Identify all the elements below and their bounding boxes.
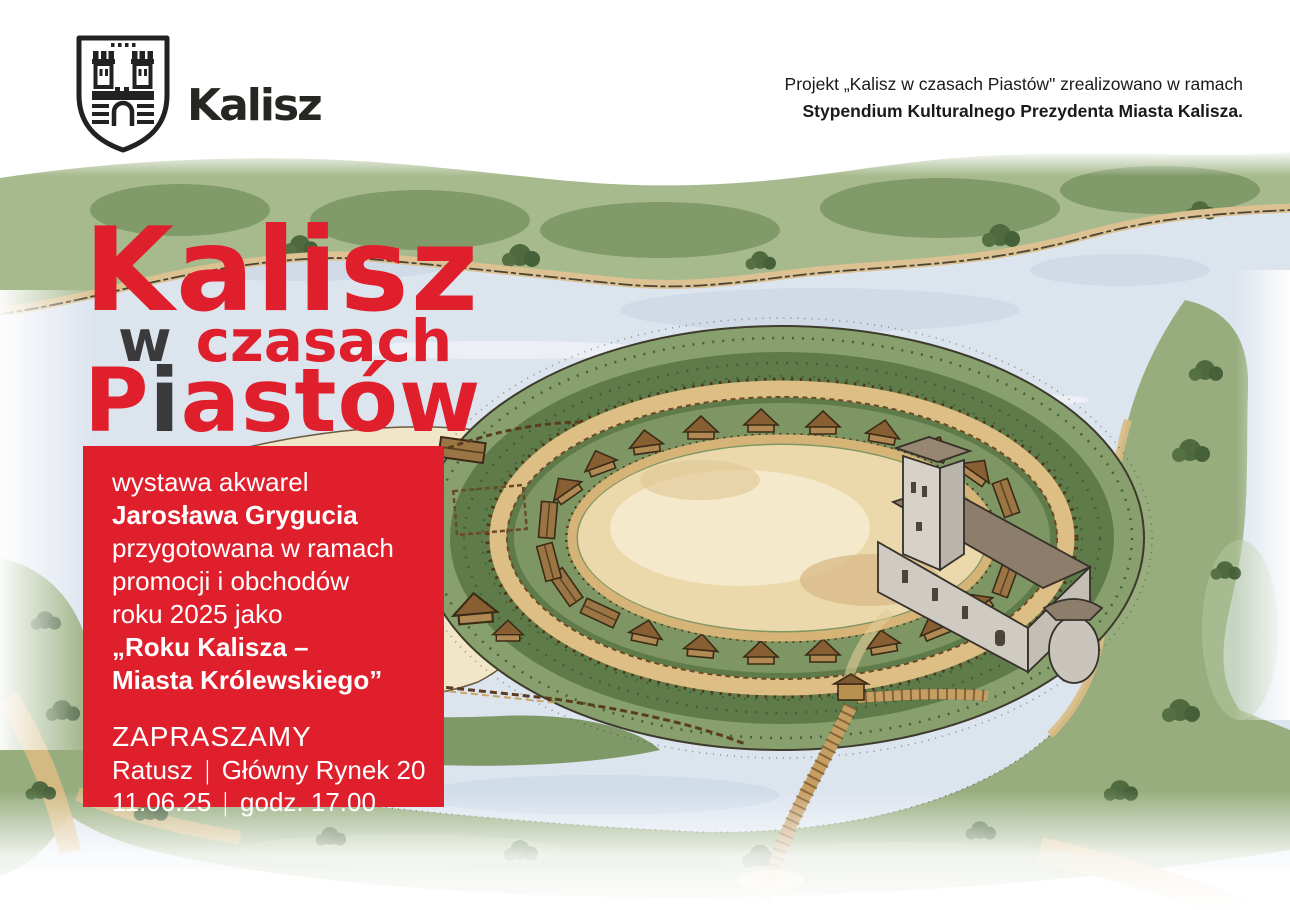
invite-heading: ZAPRASZAMY	[112, 720, 436, 754]
artist-name: Jarosława Grygucia	[112, 499, 436, 532]
venue-address: Główny Rynek 20	[222, 755, 426, 785]
year-title-line-1: „Roku Kalisza –	[112, 631, 436, 664]
kalisz-crest-icon	[73, 33, 173, 155]
details-line: roku 2025 jako	[112, 598, 436, 631]
poster-root: Kalisz Projekt „Kalisz w czasach Piastów…	[0, 0, 1290, 910]
year-title-line-2: Miasta Królewskiego”	[112, 664, 436, 697]
kalisz-wordmark: Kalisz	[187, 84, 321, 128]
project-credit: Projekt „Kalisz w czasach Piastów" zreal…	[785, 71, 1243, 125]
title-i: i	[150, 349, 181, 452]
venue-separator: |	[199, 754, 216, 786]
venue-name: Ratusz	[112, 755, 193, 785]
credit-line-1: Projekt „Kalisz w czasach Piastów" zreal…	[785, 71, 1243, 98]
time-separator: |	[217, 786, 234, 818]
church-tower	[903, 456, 940, 570]
event-date: 11.06.25	[112, 787, 211, 817]
title-line-3: Piastów	[84, 357, 481, 445]
event-details-box: wystawa akwarel Jarosława Grygucia przyg…	[83, 446, 444, 807]
title-p: P	[84, 349, 150, 452]
details-line: przygotowana w ramach	[112, 532, 436, 565]
details-line: wystawa akwarel	[112, 466, 436, 499]
apse	[1049, 617, 1099, 683]
credit-line-2: Stypendium Kulturalnego Prezydenta Miast…	[785, 98, 1243, 125]
event-time: godz. 17.00	[240, 787, 376, 817]
datetime-line: 11.06.25|godz. 17.00	[112, 786, 436, 818]
title-astow: astów	[181, 349, 482, 452]
details-line: promocji i obchodów	[112, 565, 436, 598]
venue-line: Ratusz|Główny Rynek 20	[112, 754, 436, 786]
